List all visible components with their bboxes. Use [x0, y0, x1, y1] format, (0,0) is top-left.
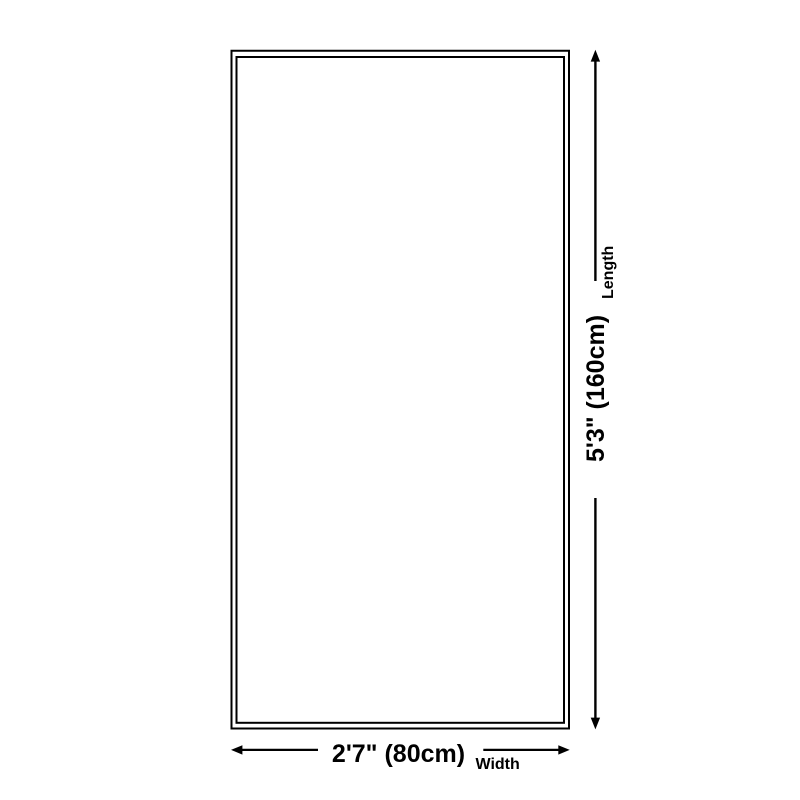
svg-text:5'3" (160cm): 5'3" (160cm): [582, 315, 610, 462]
svg-text:Length: Length: [600, 246, 617, 299]
svg-text:2'7" (80cm): 2'7" (80cm): [332, 740, 465, 768]
svg-text:Width: Width: [476, 756, 520, 773]
